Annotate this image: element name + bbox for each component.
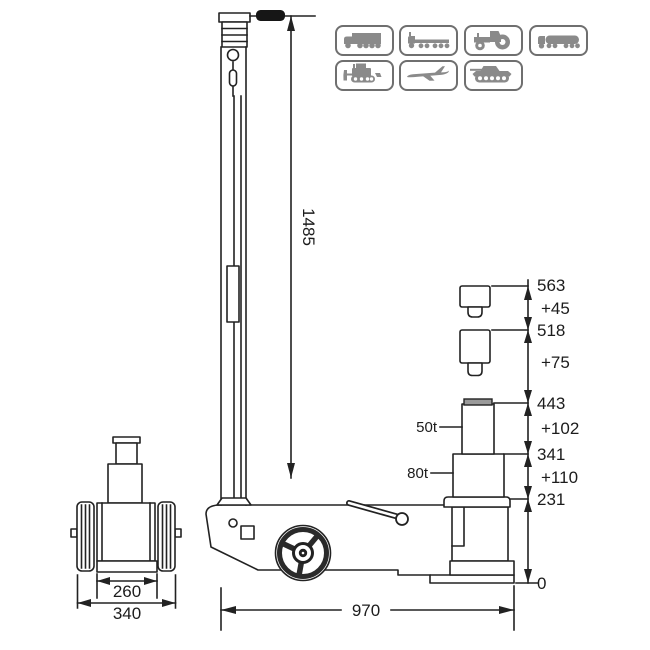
release-lever (349, 503, 408, 525)
height-label-563: 563 (537, 276, 565, 295)
handle-height-label: 1485 (299, 208, 318, 246)
handle-height-dimension: 1485 (250, 10, 318, 478)
handle-cap (219, 13, 250, 22)
bulldozer-icon (336, 61, 393, 90)
ram-housing (452, 507, 508, 561)
chassis-pin-hole (229, 519, 237, 527)
side-view: 50t 80t 1485 970 (206, 10, 514, 630)
ram-collar (444, 497, 510, 507)
capacity-label-80t: 80t (407, 465, 429, 482)
tanker-truck-icon (530, 26, 587, 55)
ram-stage-50t (462, 404, 494, 454)
base-plate (430, 575, 514, 583)
saddle-width-dimension: 260 (97, 574, 157, 601)
saddle-extensions (460, 286, 490, 376)
handle-knob (228, 50, 239, 61)
handle-sleeve (227, 266, 239, 322)
length-dimension: 970 (221, 586, 514, 630)
length-label: 970 (352, 601, 380, 620)
handle-assembly (217, 13, 251, 505)
capacity-label-50t: 50t (416, 419, 438, 436)
height-label-443: 443 (537, 394, 565, 413)
ram-stage-80t (453, 454, 504, 497)
jack-technical-diagram: 50t 80t 1485 970 (0, 0, 650, 650)
height-delta-45: +45 (541, 299, 570, 318)
box-truck-icon (336, 26, 393, 55)
tractor-icon (465, 26, 522, 55)
handle-grip (256, 10, 285, 21)
height-label-518: 518 (537, 321, 565, 340)
capacity-labels: 50t 80t (407, 419, 462, 482)
height-delta-75: +75 (541, 353, 570, 372)
lifting-ram (444, 399, 514, 575)
height-delta-110: +110 (541, 468, 578, 487)
front-base (97, 561, 157, 572)
height-delta-102: +102 (541, 419, 579, 438)
diagram-canvas: 50t 80t 1485 970 (0, 0, 650, 650)
saddle-width-label: 260 (113, 582, 141, 601)
front-ram (108, 437, 142, 503)
tank-icon (465, 61, 522, 90)
overall-width-label: 340 (113, 604, 141, 623)
height-label-341: 341 (537, 445, 565, 464)
wheel (276, 526, 331, 581)
saddle-extension-75 (460, 330, 490, 376)
ram-piston-cap (464, 399, 492, 405)
vehicle-compatibility-icons (336, 26, 587, 90)
height-label-231: 231 (537, 490, 565, 509)
flatbed-trailer-truck-icon (400, 26, 457, 55)
chassis-fitting (241, 526, 254, 539)
height-label-0: 0 (537, 574, 546, 593)
front-body (97, 503, 157, 572)
front-view: 260 340 (71, 437, 181, 623)
airplane-icon (400, 61, 457, 90)
saddle-extension-45 (460, 286, 490, 317)
ram-foot (450, 561, 514, 575)
